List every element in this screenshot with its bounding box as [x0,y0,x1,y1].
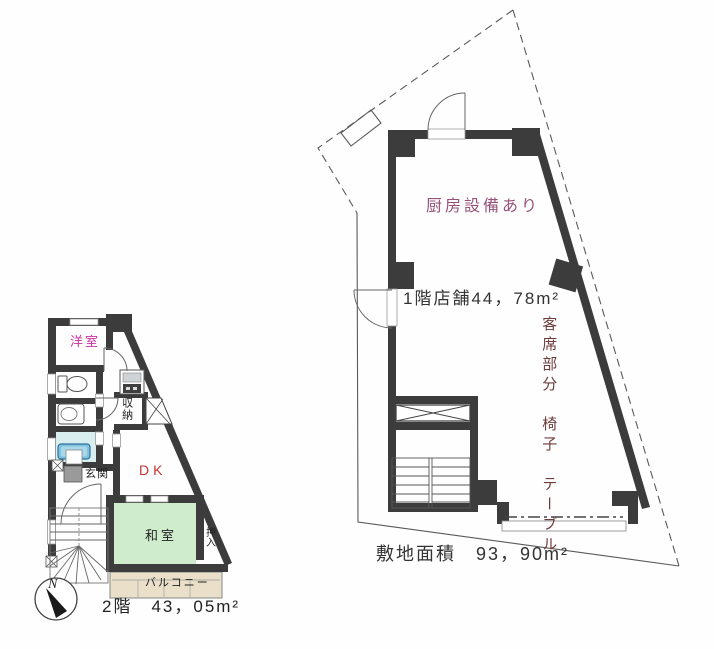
japanese-room-label: 和室 [145,529,177,544]
floor-plan-drawing [0,0,714,649]
entrance-label: 玄関 [85,468,109,481]
closet-label: 押入 [203,527,215,547]
western-room-label: 洋室 [70,335,100,350]
dining-kitchen-label: DK [139,462,166,478]
kitchen-note-label: 厨房設備あり [426,198,540,216]
first-floor-area-label: 1階店舗44，78m² [403,289,560,309]
storage-shaft-box [146,398,172,424]
shopfront-opening [502,517,626,531]
shop-shaft-box [396,405,470,421]
shop-walls [388,128,650,524]
kitchen-unit-icon [120,370,144,394]
washbasin-icon [58,404,84,424]
balcony-label: バルコニー [145,577,210,590]
seating-label: 客席部分 椅子 テーブル [540,316,557,568]
apartment-stairs [50,508,108,584]
toilet-icon [58,376,87,392]
storage-label: 収納 [120,397,133,421]
shop-stairs [392,458,470,508]
site-boundary [318,10,679,566]
compass-north-label: N [48,577,57,593]
floor-plan-canvas: 厨房設備あり 1階店舗44，78m² 客席部分 椅子 テーブル 敷地面積 93，… [0,0,714,649]
site-sign-rect [341,110,381,146]
second-floor-area-label: 2階 43，05m² [102,597,240,617]
site-area-label: 敷地面積 93，90m² [376,544,569,565]
